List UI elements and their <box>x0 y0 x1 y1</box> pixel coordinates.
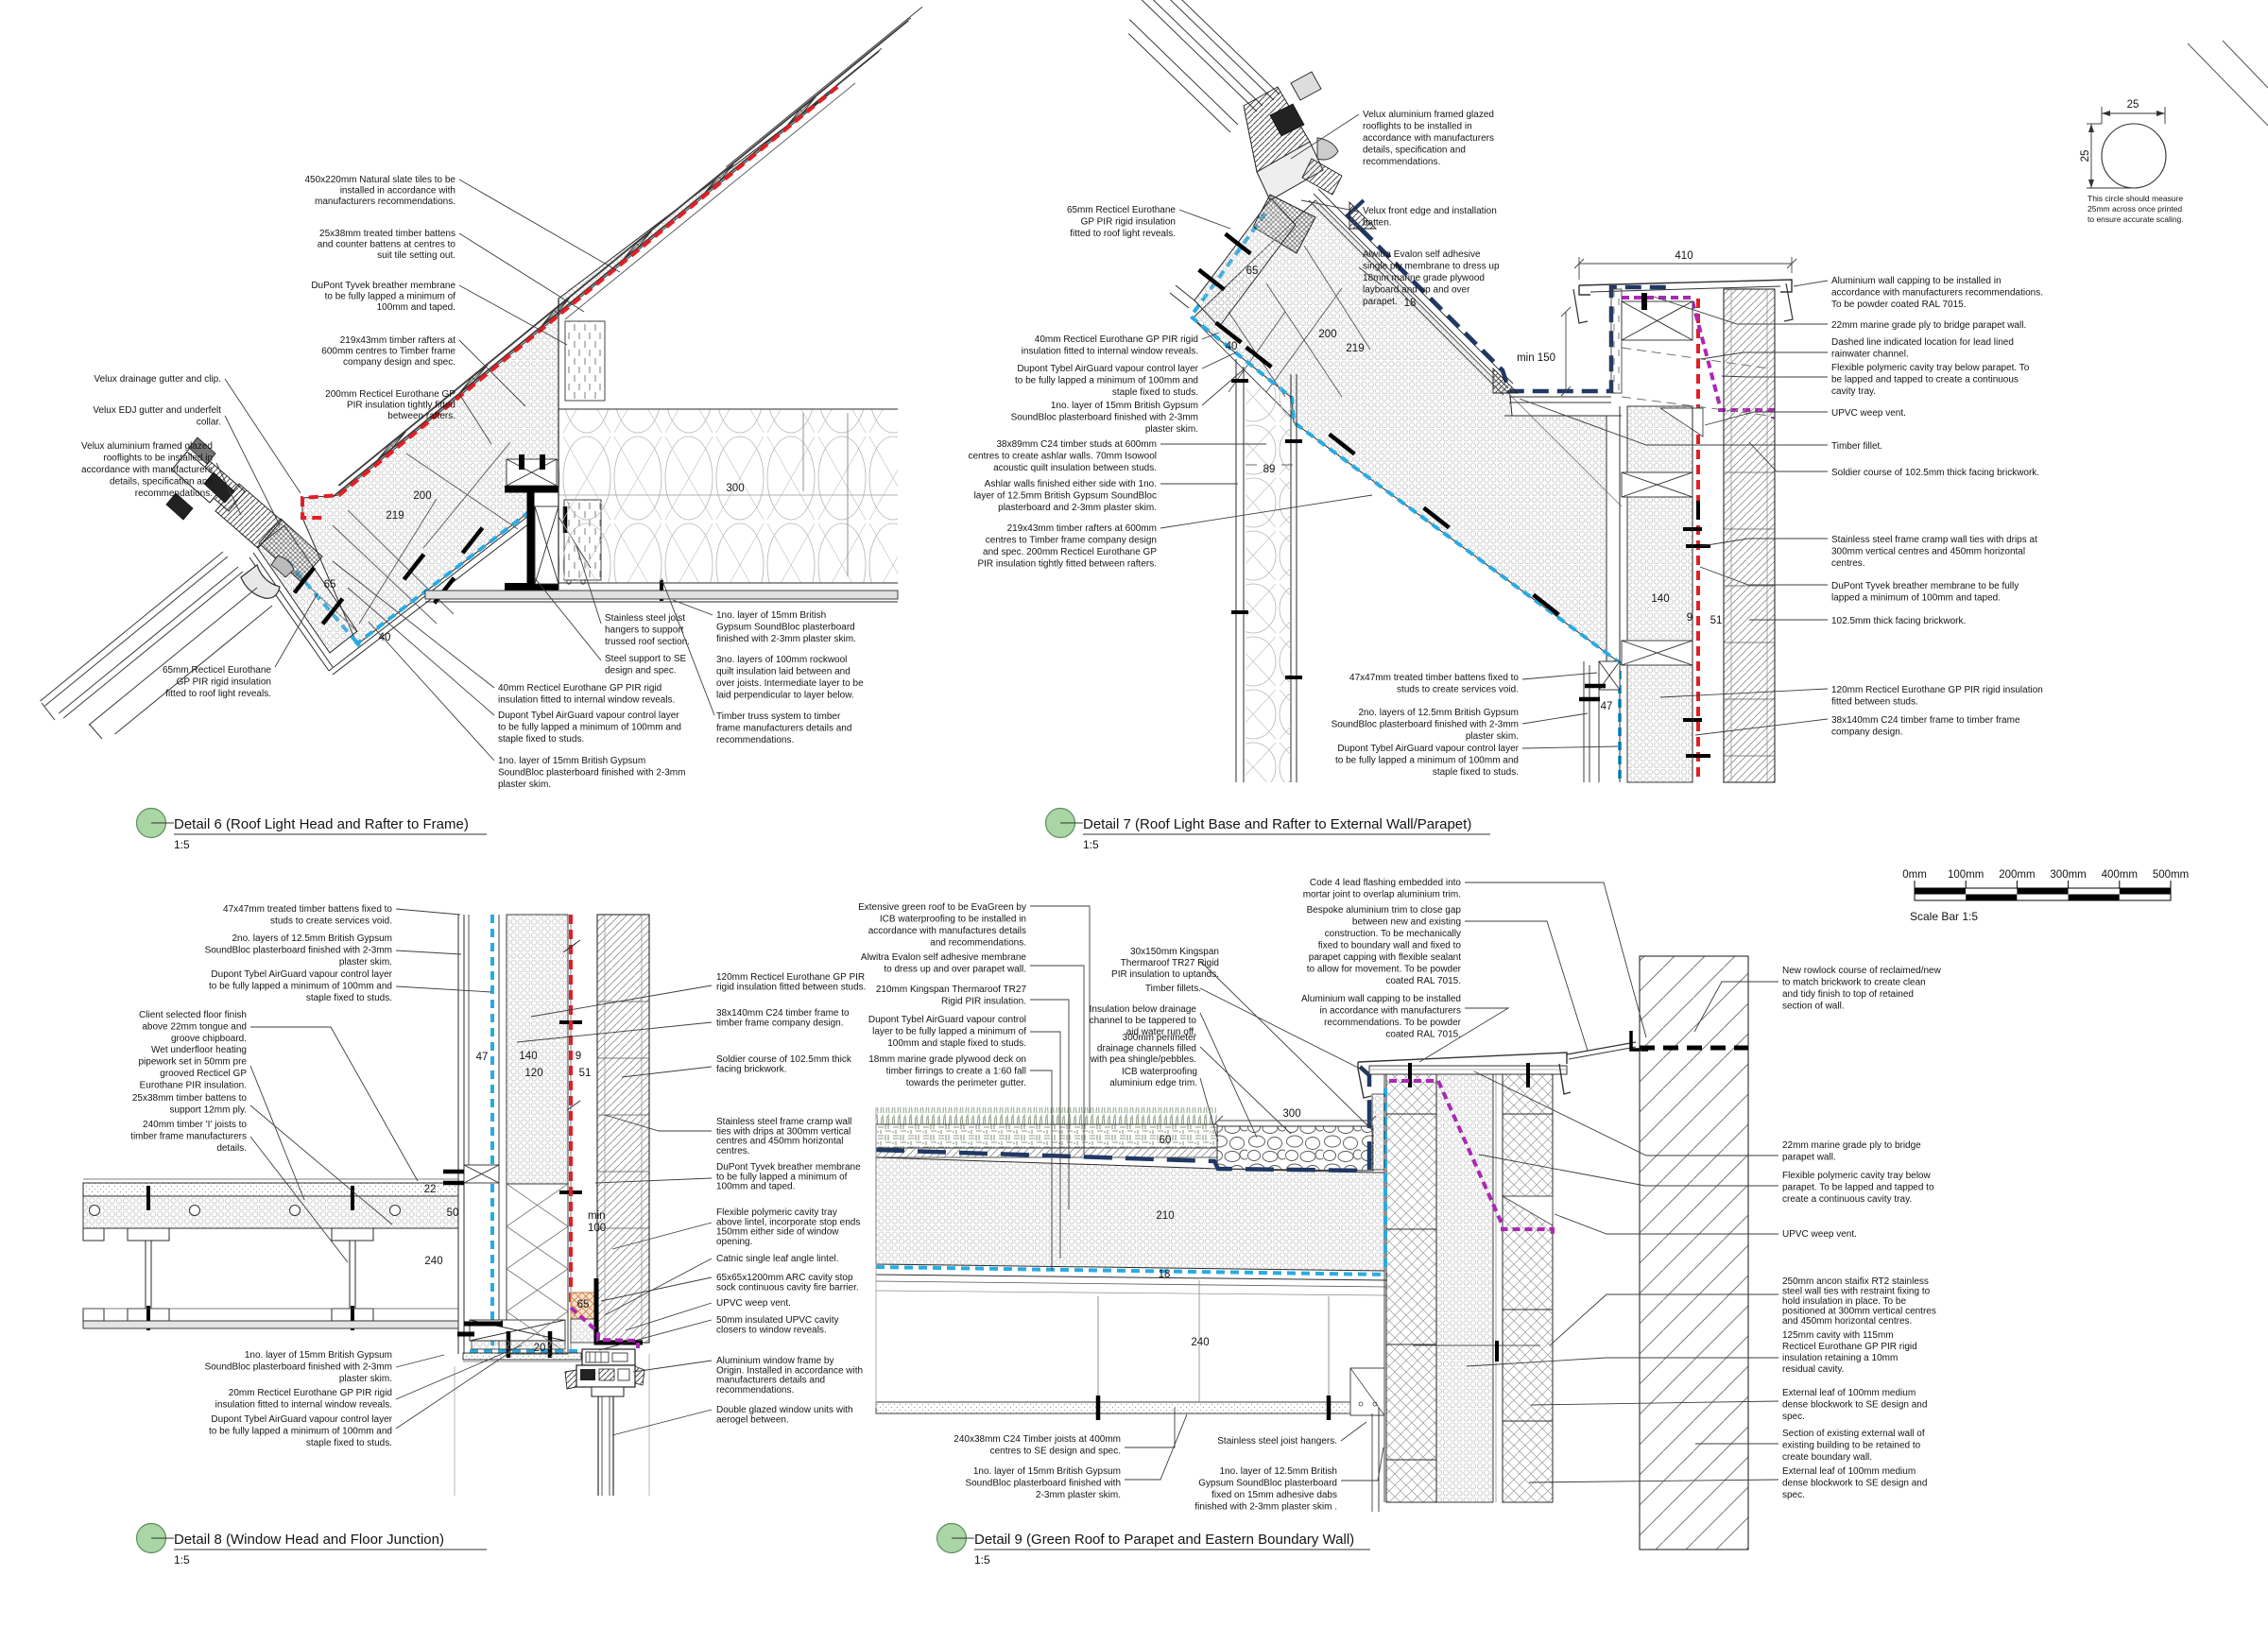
svg-text:120: 120 <box>524 1068 542 1079</box>
svg-text:300mm: 300mm <box>2050 869 2086 881</box>
svg-text:Steel support to SEdesign and: Steel support to SEdesign and spec. <box>605 654 686 676</box>
svg-text:500mm: 500mm <box>2153 869 2189 881</box>
svg-text:1:5: 1:5 <box>174 838 190 851</box>
svg-text:Detail 7 (Roof Light Base and: Detail 7 (Roof Light Base and Rafter to … <box>1083 816 1471 832</box>
svg-text:1:5: 1:5 <box>174 1553 190 1567</box>
svg-text:60: 60 <box>1160 1135 1172 1146</box>
svg-text:Detail 6 (Roof Light Head and: Detail 6 (Roof Light Head and Rafter to … <box>174 816 469 832</box>
svg-text:3no. layers of 100mm rockwoolq: 3no. layers of 100mm rockwoolquilt insul… <box>716 655 864 701</box>
svg-text:Timber fillet.: Timber fillet. <box>1831 441 1882 452</box>
svg-text:51: 51 <box>579 1068 592 1079</box>
svg-text:47: 47 <box>476 1052 489 1063</box>
svg-text:22mm marine grade ply to bridg: 22mm marine grade ply to bridge parapet … <box>1831 320 2026 331</box>
svg-text:Detail 8 (Window Head and Floo: Detail 8 (Window Head and Floor Junction… <box>174 1532 444 1548</box>
svg-text:410: 410 <box>1675 250 1692 262</box>
svg-text:140: 140 <box>519 1051 537 1062</box>
svg-text:51: 51 <box>1710 615 1723 626</box>
svg-text:38x140mm C24 timber frame toti: 38x140mm C24 timber frame totimber frame… <box>716 1008 850 1028</box>
svg-text:Dupont Tybel AirGuard vapour c: Dupont Tybel AirGuard vapour controllaye… <box>868 1015 1026 1049</box>
svg-text:300: 300 <box>726 483 744 494</box>
svg-text:200: 200 <box>1318 329 1336 340</box>
svg-text:65: 65 <box>577 1299 590 1310</box>
svg-text:Code 4 lead flashing embedded: Code 4 lead flashing embedded intomortar… <box>1303 878 1462 900</box>
svg-text:Ashlar walls finished either s: Ashlar walls finished either side with 1… <box>974 479 1157 513</box>
svg-text:240: 240 <box>1191 1337 1209 1348</box>
svg-text:0mm: 0mm <box>1902 869 1927 881</box>
svg-text:38x89mm C24 timber studs at 60: 38x89mm C24 timber studs at 600mmcentres… <box>968 439 1157 473</box>
svg-text:25: 25 <box>2127 99 2139 111</box>
svg-text:120mm Recticel Eurothane GP PI: 120mm Recticel Eurothane GP PIRrigid ins… <box>716 972 866 992</box>
svg-text:Stainless steel joist hangers.: Stainless steel joist hangers. <box>1217 1436 1337 1447</box>
svg-text:40: 40 <box>379 632 391 643</box>
svg-text:65x65x1200mm ARC cavity stopso: 65x65x1200mm ARC cavity stopsock continu… <box>716 1273 859 1293</box>
svg-text:25: 25 <box>2080 150 2091 163</box>
svg-text:22: 22 <box>424 1184 437 1195</box>
svg-text:Soldier course of 102.5mm thic: Soldier course of 102.5mm thick facing b… <box>1831 468 2039 478</box>
svg-text:40mm Recticel Eurothane GP PIR: 40mm Recticel Eurothane GP PIR rigidinsu… <box>498 683 675 706</box>
svg-text:UPVC weep vent.: UPVC weep vent. <box>1782 1229 1857 1240</box>
svg-text:UPVC weep vent.: UPVC weep vent. <box>716 1298 791 1309</box>
svg-text:9: 9 <box>576 1051 581 1062</box>
svg-text:65mm Recticel EurothaneGP PIR: 65mm Recticel EurothaneGP PIR rigid insu… <box>163 665 271 699</box>
svg-text:18: 18 <box>1159 1269 1171 1280</box>
svg-text:50mm insulated UPVC cavityclos: 50mm insulated UPVC cavityclosers to win… <box>716 1315 839 1335</box>
svg-text:Scale Bar 1:5: Scale Bar 1:5 <box>1910 910 1978 923</box>
svg-text:65: 65 <box>324 579 336 591</box>
svg-text:ICB waterproofingaluminium edg: ICB waterproofingaluminium edge trim. <box>1109 1067 1197 1088</box>
svg-text:102.5mm thick facing brickwork: 102.5mm thick facing brickwork. <box>1831 616 1966 626</box>
svg-text:min 150: min 150 <box>1517 352 1555 364</box>
svg-text:240: 240 <box>424 1256 442 1267</box>
svg-text:9: 9 <box>1687 612 1692 624</box>
svg-text:1:5: 1:5 <box>1083 838 1099 851</box>
svg-text:50: 50 <box>447 1207 459 1219</box>
svg-text:200: 200 <box>413 490 431 502</box>
svg-text:100mm: 100mm <box>1948 869 1984 881</box>
svg-text:min: min <box>588 1210 606 1222</box>
svg-text:1:5: 1:5 <box>974 1553 990 1567</box>
svg-text:40mm Recticel Eurothane GP PIR: 40mm Recticel Eurothane GP PIR rigidinsu… <box>1022 334 1198 357</box>
svg-text:18: 18 <box>1404 298 1417 309</box>
svg-text:UPVC weep vent.: UPVC weep vent. <box>1831 408 1906 419</box>
svg-text:89: 89 <box>1263 464 1276 475</box>
svg-text:Catnic single leaf angle linte: Catnic single leaf angle lintel. <box>716 1254 839 1264</box>
svg-text:219: 219 <box>386 510 404 522</box>
svg-text:100: 100 <box>588 1223 606 1234</box>
svg-text:200mm: 200mm <box>1999 869 2035 881</box>
svg-text:Velux drainage gutter and clip: Velux drainage gutter and clip. <box>94 374 221 385</box>
svg-text:219: 219 <box>1346 343 1364 354</box>
svg-text:20: 20 <box>534 1343 546 1354</box>
svg-text:40: 40 <box>1226 341 1238 352</box>
svg-text:This circle should measure25mm: This circle should measure25mm across on… <box>2088 194 2184 224</box>
svg-text:65mm Recticel EurothaneGP PIR: 65mm Recticel EurothaneGP PIR rigid insu… <box>1067 205 1176 239</box>
svg-text:Detail 9 (Green Roof to Parape: Detail 9 (Green Roof to Parapet and East… <box>974 1532 1354 1548</box>
svg-text:210: 210 <box>1156 1210 1174 1222</box>
svg-text:47: 47 <box>1601 701 1613 712</box>
svg-text:65: 65 <box>1246 265 1259 277</box>
svg-text:140: 140 <box>1651 593 1669 605</box>
svg-text:20mm Recticel Eurothane GP PIR: 20mm Recticel Eurothane GP PIR rigidinsu… <box>215 1388 392 1411</box>
svg-text:300: 300 <box>1282 1108 1300 1120</box>
svg-text:Timber fillets.: Timber fillets. <box>1145 984 1201 994</box>
svg-text:DuPont Tyvek breather membrane: DuPont Tyvek breather membrane to be ful… <box>1831 581 2019 604</box>
svg-text:Alwitra Evalon self adhesive m: Alwitra Evalon self adhesive membraneto … <box>861 952 1027 975</box>
svg-text:400mm: 400mm <box>2102 869 2138 881</box>
svg-text:Flexible polymeric cavity tray: Flexible polymeric cavity tray belowpara… <box>1782 1171 1934 1205</box>
